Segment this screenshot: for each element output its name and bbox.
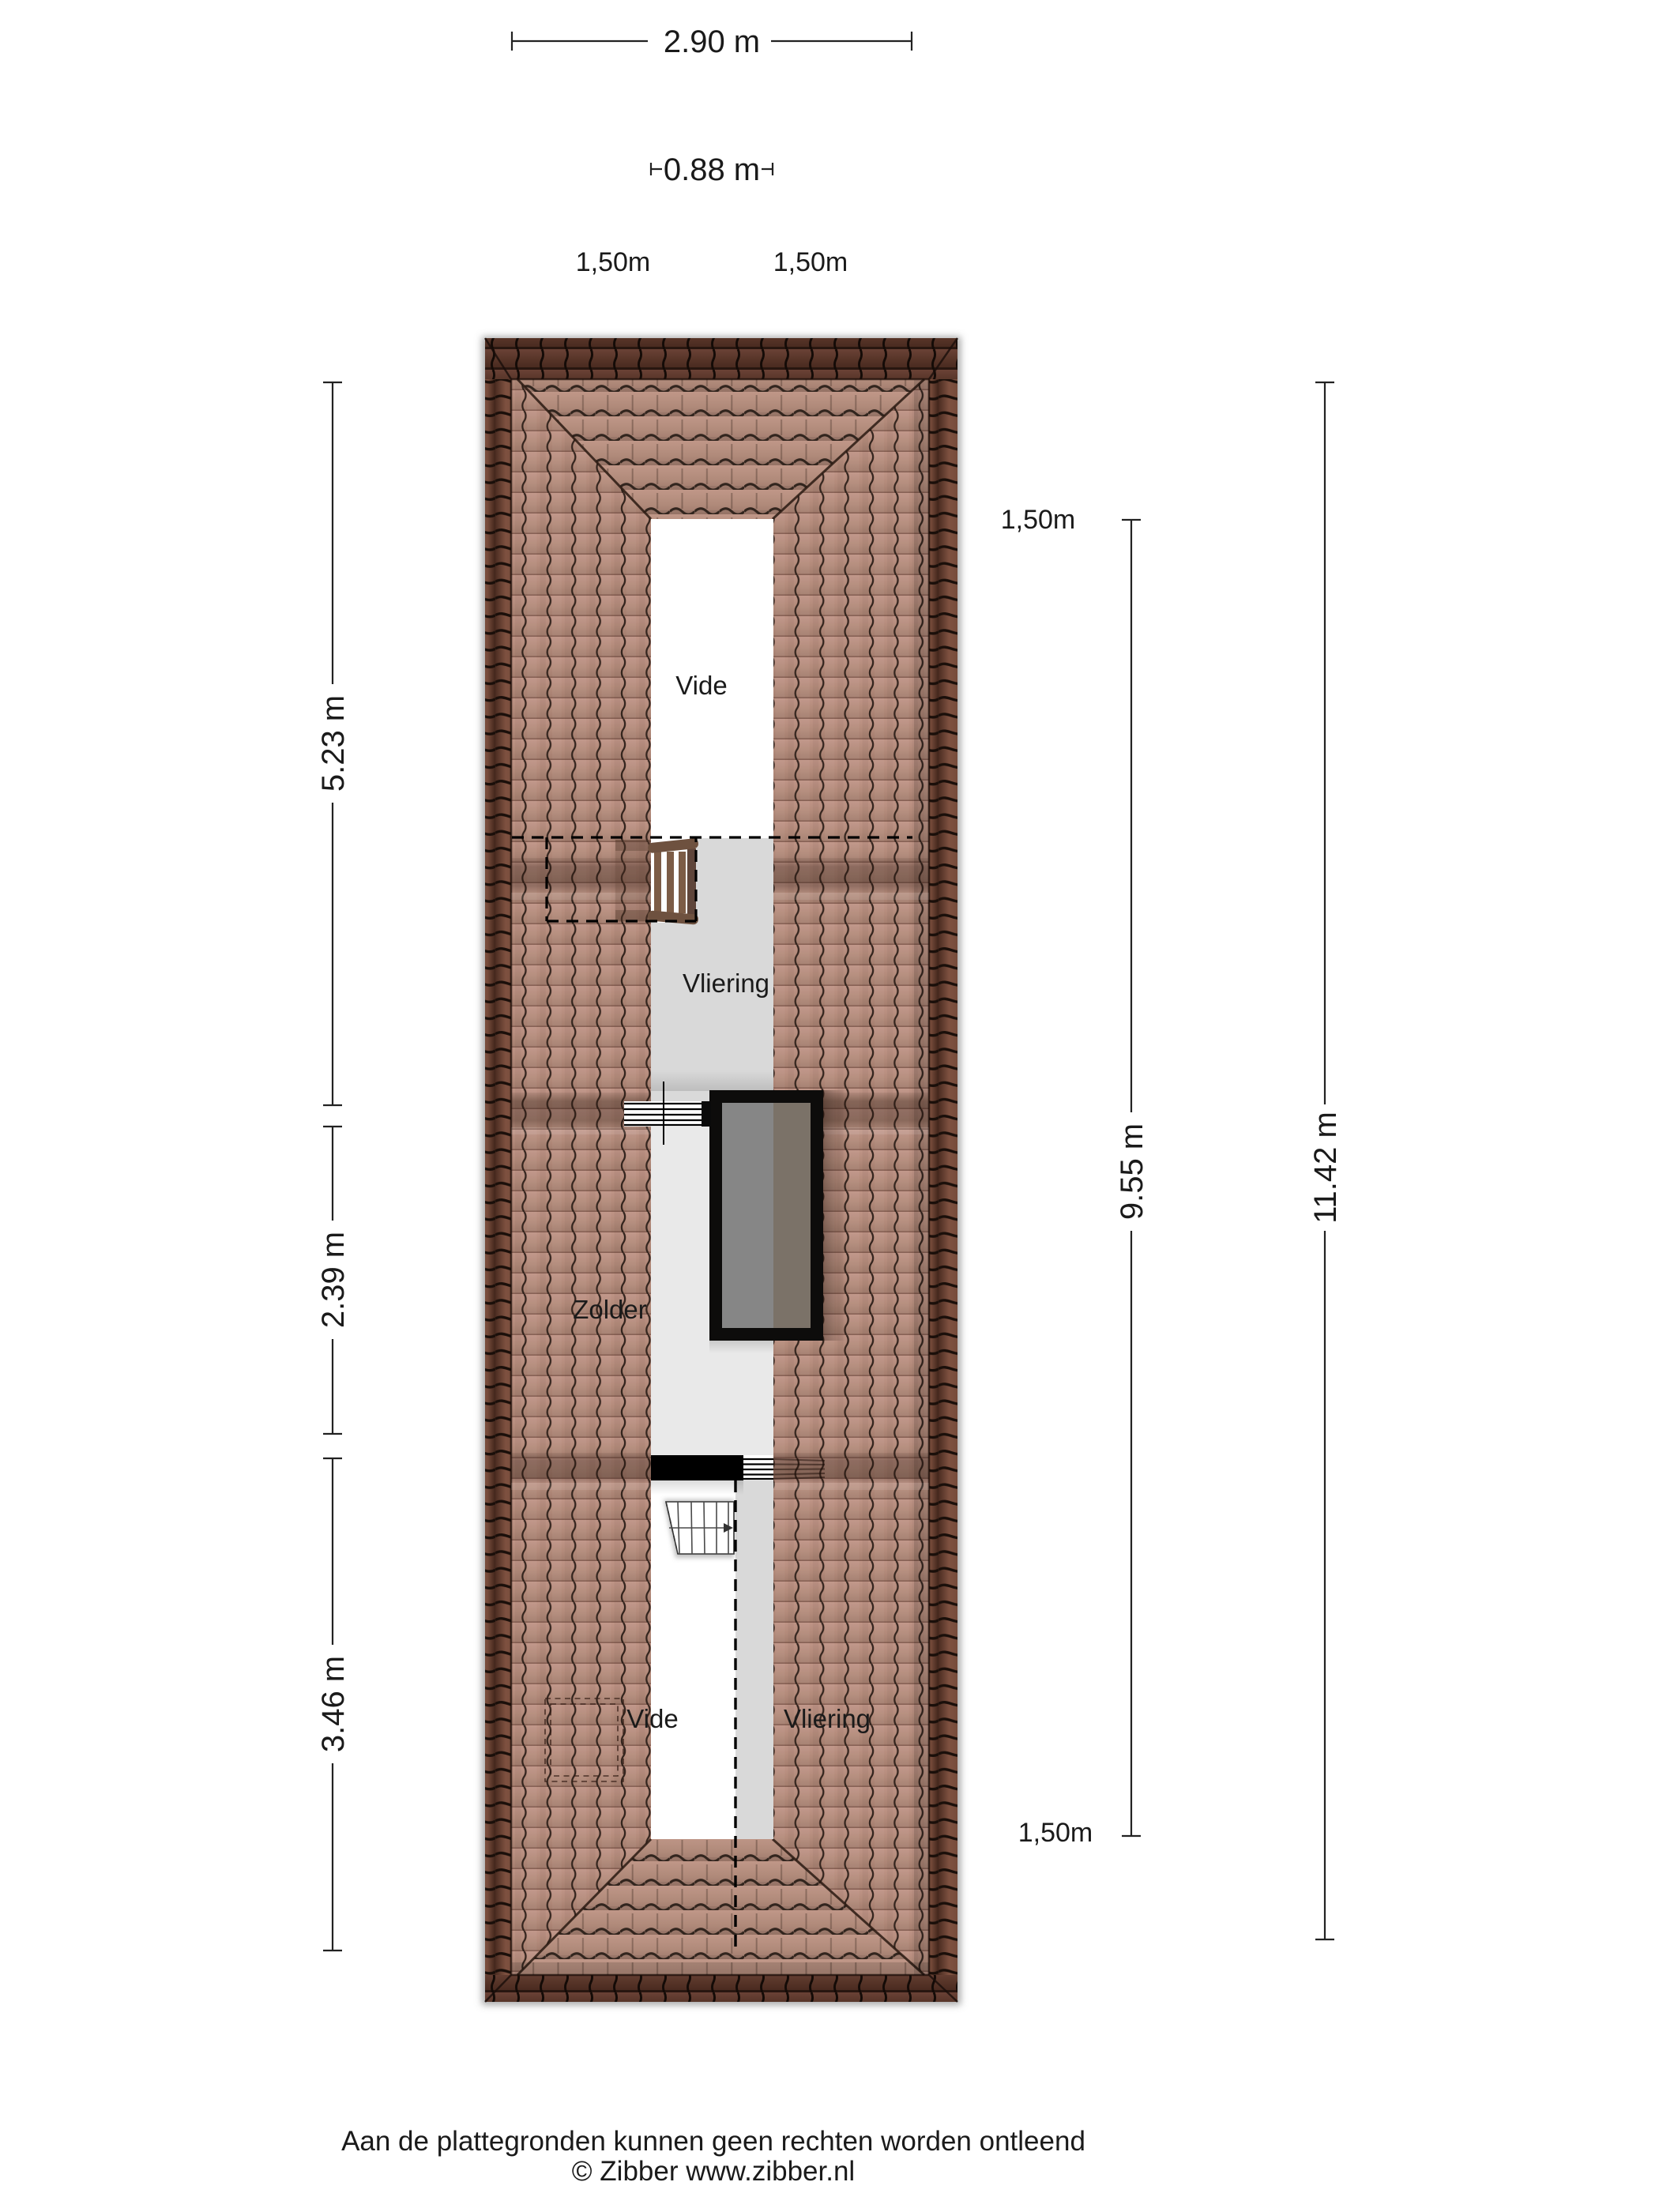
svg-text:5.23 m: 5.23 m <box>316 695 351 792</box>
svg-text:1,50m: 1,50m <box>576 247 651 277</box>
svg-text:9.55 m: 9.55 m <box>1115 1123 1149 1220</box>
svg-text:© Zibber www.zibber.nl: © Zibber www.zibber.nl <box>572 2156 855 2187</box>
svg-text:1,50m: 1,50m <box>1001 505 1076 535</box>
svg-text:Vliering: Vliering <box>784 1704 871 1733</box>
svg-text:Vliering: Vliering <box>683 969 769 998</box>
svg-text:1,50m: 1,50m <box>773 247 848 277</box>
svg-text:1,50m: 1,50m <box>1018 1818 1093 1848</box>
svg-text:2.39 m: 2.39 m <box>316 1232 351 1328</box>
svg-text:0.88 m: 0.88 m <box>664 152 760 187</box>
svg-text:3.46 m: 3.46 m <box>316 1656 351 1752</box>
svg-text:11.42 m: 11.42 m <box>1308 1112 1343 1224</box>
svg-text:Vide: Vide <box>675 671 727 700</box>
svg-text:Vide: Vide <box>626 1704 678 1733</box>
svg-text:Aan de plattegronden kunnen ge: Aan de plattegronden kunnen geen rechten… <box>341 2126 1085 2157</box>
svg-text:Zolder: Zolder <box>573 1295 647 1324</box>
svg-text:2.90 m: 2.90 m <box>664 24 760 59</box>
